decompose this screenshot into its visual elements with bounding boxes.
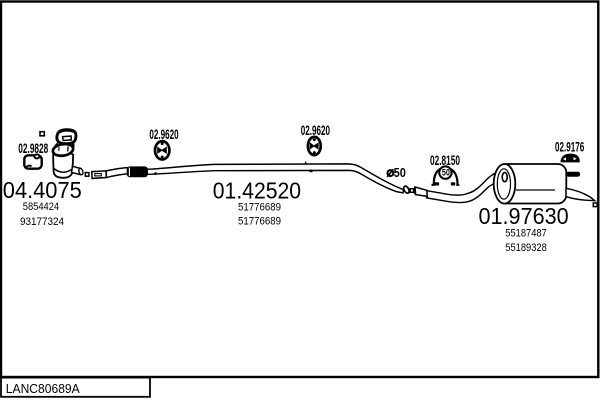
svg-text:5854424: 5854424	[23, 201, 60, 213]
svg-text:50: 50	[394, 166, 407, 180]
svg-text:51776689: 51776689	[238, 202, 281, 214]
svg-text:LANC80689A: LANC80689A	[6, 382, 81, 396]
svg-text:02.9620: 02.9620	[301, 124, 330, 139]
svg-text:01.42520: 01.42520	[213, 178, 301, 204]
svg-text:02.8150: 02.8150	[430, 154, 460, 168]
svg-text:55187487: 55187487	[505, 228, 547, 240]
svg-text:04.4075: 04.4075	[3, 177, 82, 203]
svg-text:01.97630: 01.97630	[479, 203, 569, 229]
svg-text:50: 50	[442, 168, 450, 178]
svg-text:02.9620: 02.9620	[149, 128, 178, 143]
svg-text:55189328: 55189328	[505, 242, 547, 254]
svg-text:02.9176: 02.9176	[555, 141, 584, 156]
svg-text:02.9828: 02.9828	[18, 142, 48, 156]
svg-text:51776689: 51776689	[238, 216, 281, 228]
svg-text:93177324: 93177324	[20, 216, 64, 228]
